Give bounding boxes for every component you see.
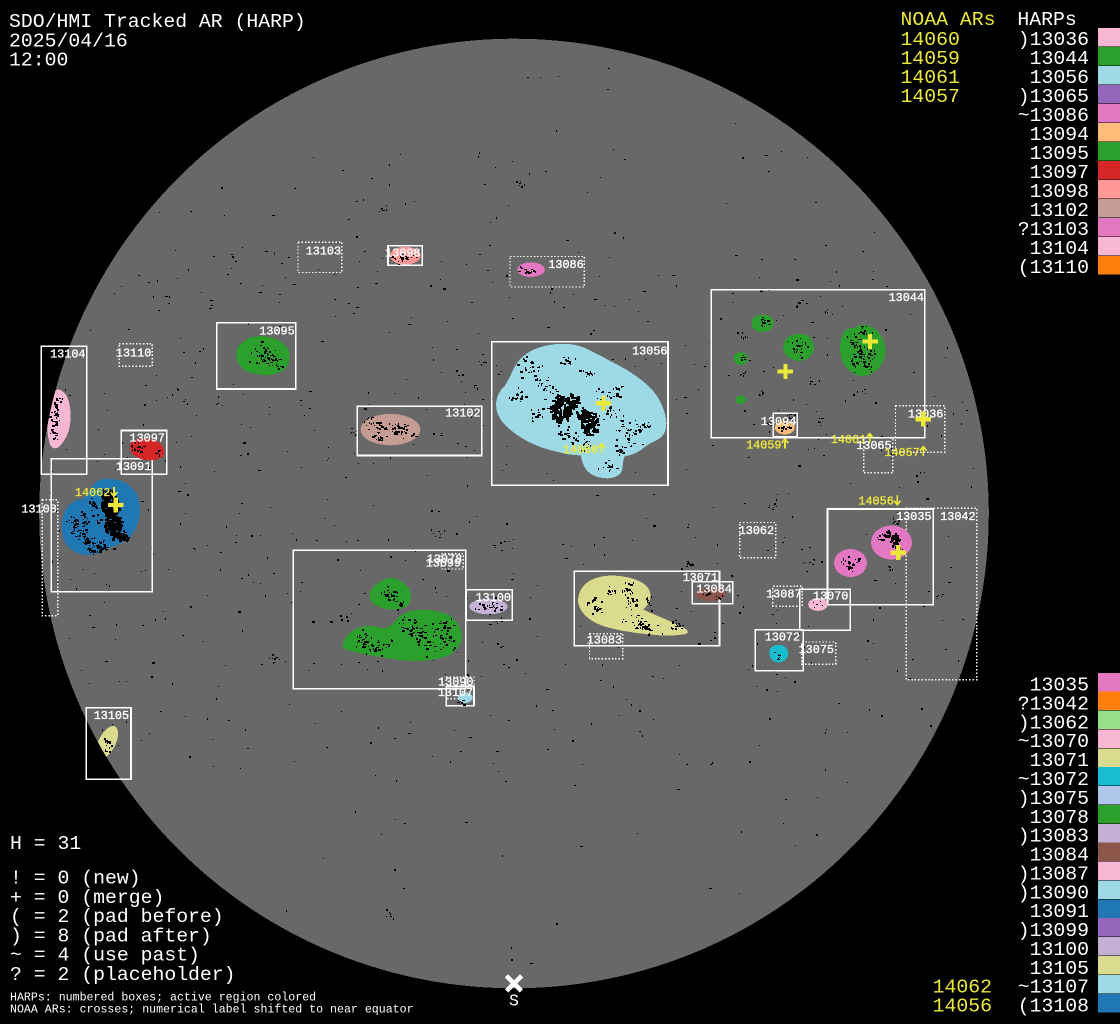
svg-text:13104: 13104: [50, 348, 85, 362]
svg-text:13086: 13086: [548, 258, 583, 272]
svg-text:14060: 14060: [563, 443, 598, 457]
svg-text:13042: 13042: [940, 510, 975, 524]
svg-text:14057: 14057: [884, 446, 919, 460]
svg-text:14059: 14059: [746, 438, 781, 452]
svg-text:(13108: (13108: [1018, 996, 1089, 1018]
svg-text:13095: 13095: [259, 324, 294, 338]
svg-text:14057: 14057: [901, 86, 960, 108]
svg-text:13044: 13044: [889, 291, 924, 305]
svg-text:13099: 13099: [426, 557, 461, 571]
svg-text:? = 2 (placeholder): ? = 2 (placeholder): [10, 964, 236, 986]
svg-text:13075: 13075: [799, 643, 834, 657]
svg-text:12:00: 12:00: [9, 50, 68, 72]
svg-text:13097: 13097: [129, 432, 164, 446]
svg-text:13035: 13035: [896, 510, 931, 524]
svg-text:H = 31: H = 31: [10, 833, 81, 855]
svg-text:14056: 14056: [933, 996, 992, 1018]
svg-text:14056: 14056: [858, 495, 893, 509]
svg-text:13108: 13108: [21, 503, 56, 517]
svg-text:13103: 13103: [306, 244, 341, 258]
svg-text:13105: 13105: [94, 709, 129, 723]
svg-text:14062: 14062: [75, 486, 110, 500]
svg-text:13107: 13107: [438, 686, 473, 700]
svg-text:13056: 13056: [632, 344, 667, 358]
svg-text:13084: 13084: [696, 583, 731, 597]
svg-text:13110: 13110: [116, 346, 151, 360]
svg-text:13072: 13072: [765, 630, 800, 644]
svg-text:NOAA ARs: NOAA ARs: [901, 9, 996, 31]
svg-text:13083: 13083: [587, 633, 622, 647]
svg-text:13098: 13098: [385, 247, 420, 261]
svg-text:13094: 13094: [761, 415, 796, 429]
svg-text:S: S: [509, 992, 519, 1011]
svg-text:(13110: (13110: [1018, 257, 1089, 279]
svg-text:HARPs: HARPs: [1017, 9, 1076, 31]
svg-text:13070: 13070: [813, 590, 848, 604]
svg-text:13087: 13087: [766, 587, 801, 601]
svg-text:NOAA ARs: crosses; numerical l: NOAA ARs: crosses; numerical label shift…: [10, 1004, 414, 1017]
svg-text:13062: 13062: [739, 524, 774, 538]
svg-text:13102: 13102: [445, 406, 480, 420]
svg-text:13100: 13100: [476, 591, 511, 605]
